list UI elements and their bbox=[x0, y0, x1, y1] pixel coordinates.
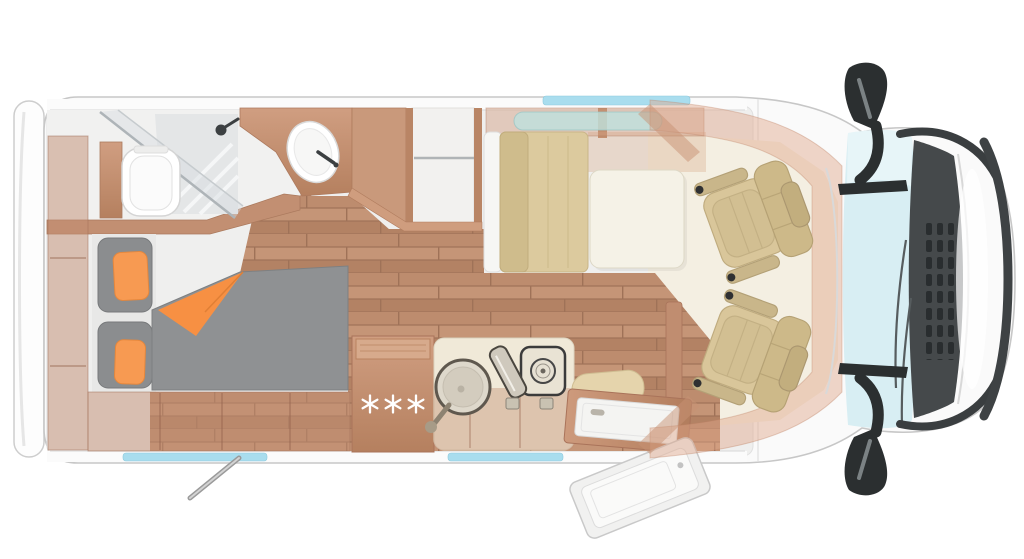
window-strip-bottom-kitchen bbox=[448, 453, 563, 461]
toilet-flush bbox=[134, 146, 168, 153]
refrigerator bbox=[352, 336, 434, 452]
crank-handle-highlight bbox=[190, 458, 239, 498]
toilet-seat bbox=[130, 156, 172, 210]
pillow-top bbox=[113, 251, 149, 301]
toilet bbox=[122, 146, 180, 216]
knob-left bbox=[506, 398, 519, 409]
fridge-top-face bbox=[356, 339, 430, 359]
toilet-side-panel bbox=[100, 142, 122, 218]
hood-highlight bbox=[956, 169, 988, 389]
bench-side-panel bbox=[484, 132, 502, 272]
pillow-bottom bbox=[114, 339, 146, 384]
wardrobe-divider-wall bbox=[406, 108, 413, 226]
floorplan-canvas: Motorhome floor plan - top view bbox=[0, 0, 1024, 559]
sink-faucet-handle bbox=[425, 421, 437, 433]
wardrobe-open-shelf bbox=[412, 108, 474, 224]
under-bed-storage bbox=[88, 392, 350, 451]
dinette-table bbox=[590, 170, 684, 268]
wardrobe-right-wall bbox=[474, 108, 482, 228]
burner-center bbox=[541, 369, 546, 374]
bench-backrest bbox=[500, 132, 528, 272]
faucet-knob bbox=[334, 163, 339, 168]
rear-wardrobe-column bbox=[48, 136, 88, 450]
cowl-vents bbox=[922, 220, 954, 360]
shower-head-icon bbox=[216, 125, 227, 136]
sink-drain bbox=[458, 386, 465, 393]
knob-right bbox=[540, 398, 553, 409]
window-strip-bottom-rear bbox=[123, 453, 267, 461]
motorhome-floorplan: Motorhome floor plan - top view bbox=[0, 0, 1024, 559]
